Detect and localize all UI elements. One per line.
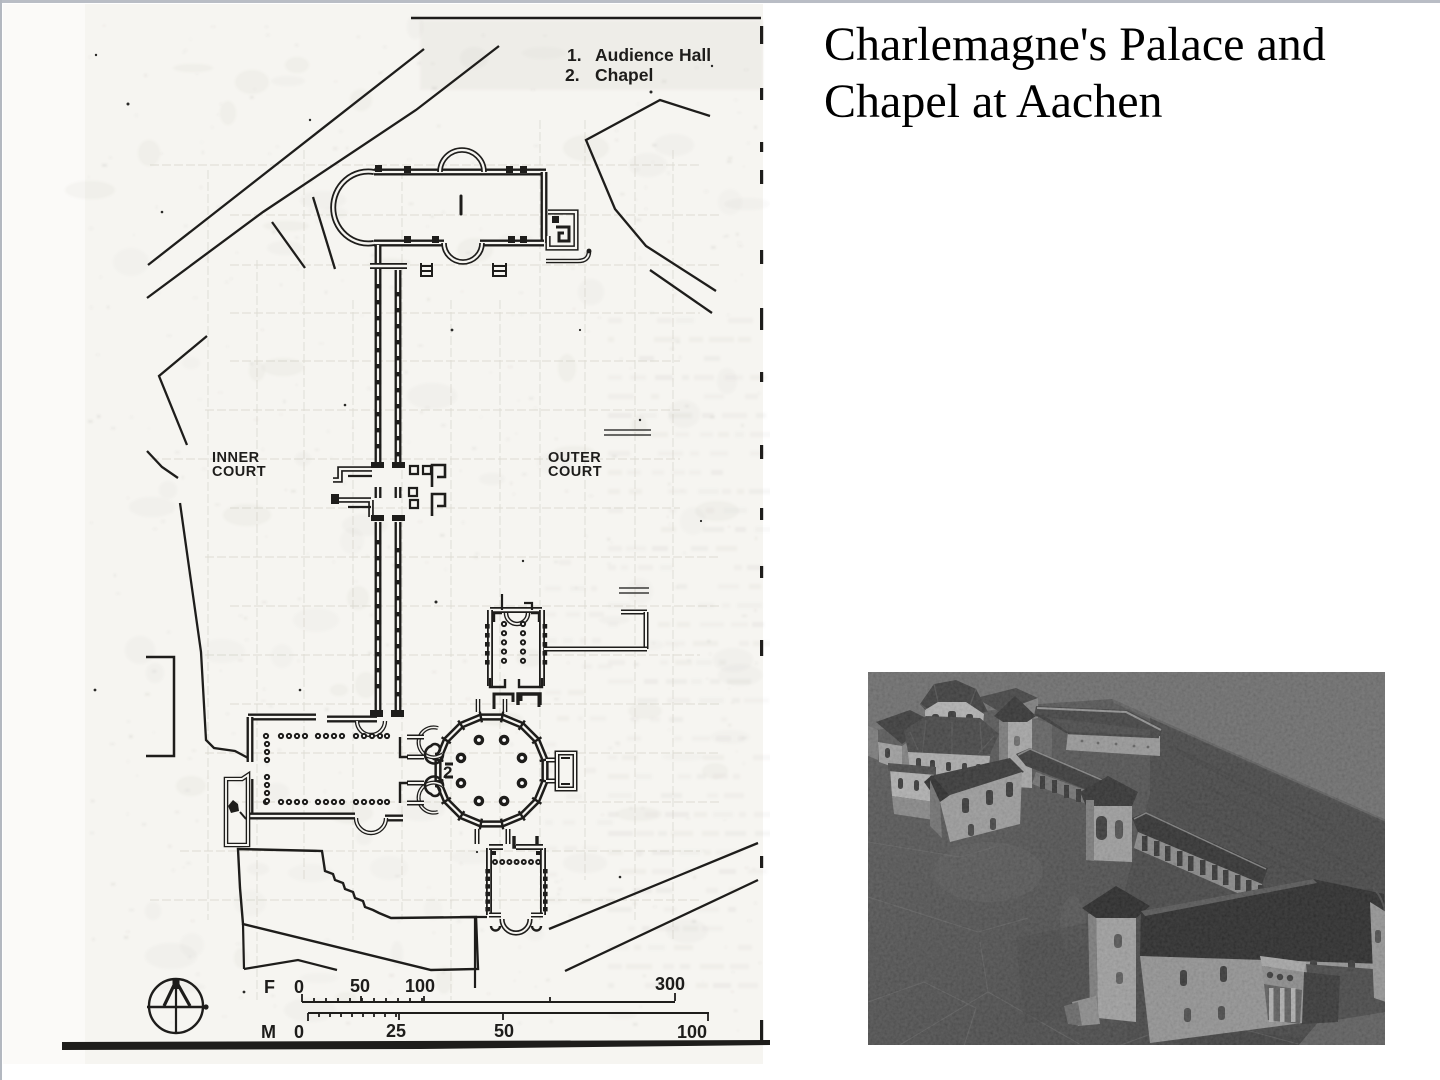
svg-text:Hall: Hall xyxy=(679,45,711,65)
svg-text:50: 50 xyxy=(494,1021,514,1041)
svg-text:Audience: Audience xyxy=(595,45,674,65)
svg-text:0: 0 xyxy=(294,1022,304,1042)
svg-text:2: 2 xyxy=(443,763,452,782)
svg-text:COURT: COURT xyxy=(212,464,266,480)
svg-text:COURT: COURT xyxy=(548,464,602,480)
svg-text:100: 100 xyxy=(677,1022,707,1042)
svg-text:1.: 1. xyxy=(567,45,582,65)
svg-text:50: 50 xyxy=(350,976,370,996)
svg-text:100: 100 xyxy=(405,976,435,996)
svg-text:25: 25 xyxy=(386,1021,406,1041)
svg-text:300: 300 xyxy=(655,974,685,994)
svg-text:2.: 2. xyxy=(565,65,580,85)
svg-text:M: M xyxy=(261,1022,276,1042)
svg-text:Chapel: Chapel xyxy=(595,65,653,85)
svg-text:F: F xyxy=(264,977,275,997)
